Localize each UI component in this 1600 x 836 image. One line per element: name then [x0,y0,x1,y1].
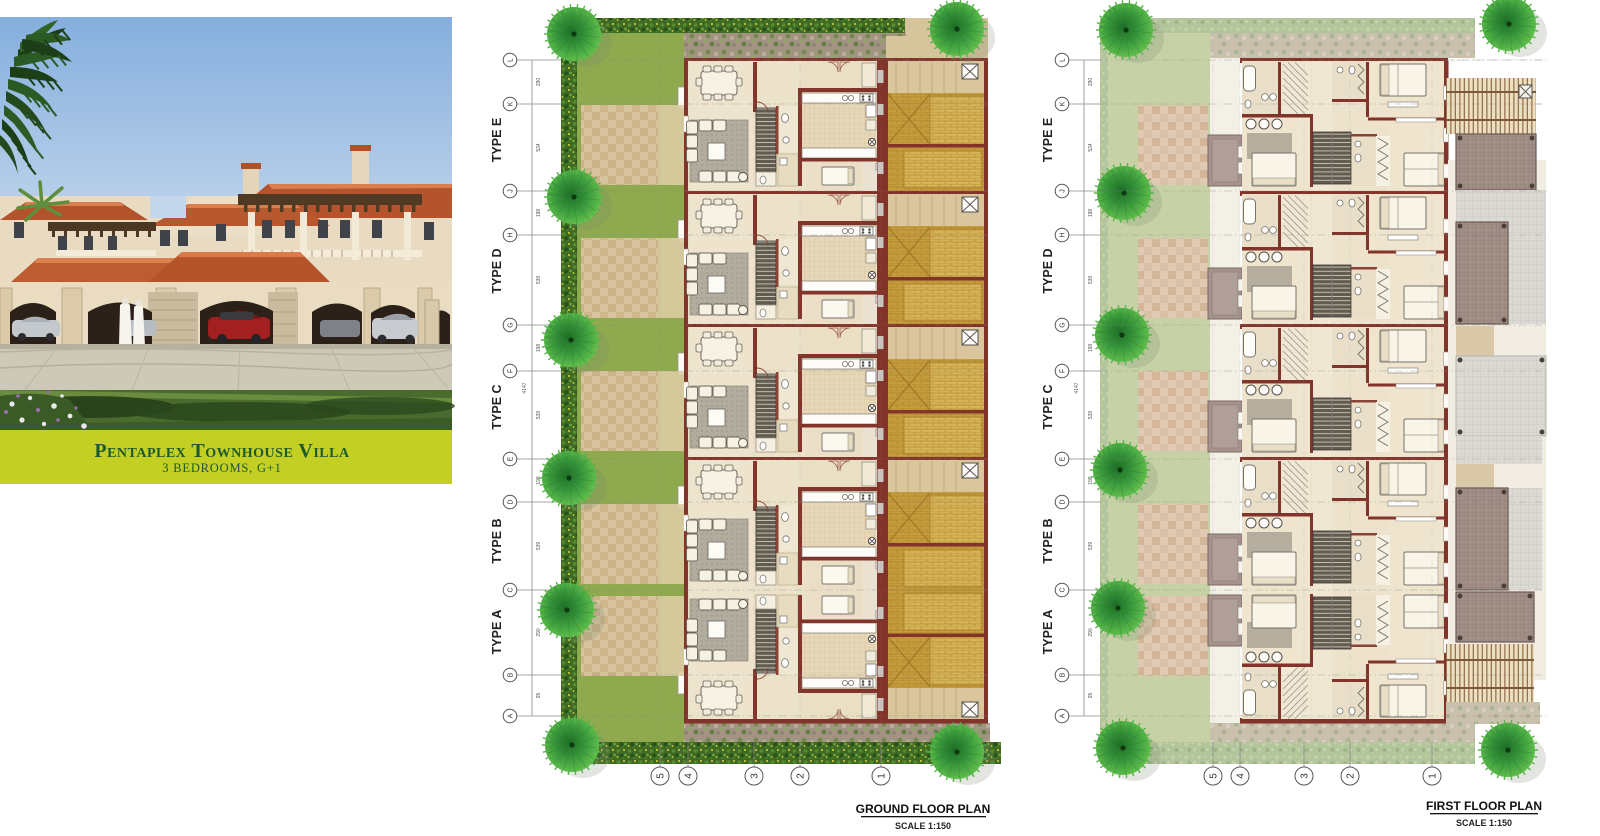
svg-text:539: 539 [1088,542,1094,551]
svg-text:290: 290 [1088,628,1094,637]
svg-text:TYPE B: TYPE B [1041,518,1055,563]
svg-text:5: 5 [1209,773,1220,779]
svg-text:TYPE A: TYPE A [490,610,504,655]
svg-text:G: G [508,322,515,327]
svg-text:198: 198 [1088,209,1094,218]
svg-text:K: K [508,101,515,106]
svg-text:2: 2 [1346,773,1357,779]
svg-text:5: 5 [656,773,667,779]
svg-text:539: 539 [536,276,542,285]
svg-text:198: 198 [536,344,542,353]
svg-text:198: 198 [536,209,542,218]
svg-text:4: 4 [684,773,695,779]
svg-text:J: J [508,189,515,193]
svg-text:539: 539 [536,542,542,551]
svg-text:F: F [1060,369,1067,373]
svg-text:FIRST FLOOR PLAN: FIRST FLOOR PLAN [1426,799,1542,813]
svg-text:GROUND FLOOR PLAN: GROUND FLOOR PLAN [856,802,991,816]
svg-text:C: C [508,587,515,592]
svg-text:J: J [1060,189,1067,193]
svg-text:C: C [1060,587,1067,592]
svg-text:TYPE D: TYPE D [1041,248,1055,293]
svg-text:1: 1 [877,773,888,779]
svg-text:TYPE D: TYPE D [490,248,504,293]
svg-text:2: 2 [796,773,807,779]
svg-text:B: B [508,672,515,677]
svg-text:E: E [1060,456,1067,461]
svg-text:4147: 4147 [522,382,528,393]
svg-text:290: 290 [536,628,542,637]
svg-text:3: 3 [1300,773,1311,779]
svg-text:E: E [508,456,515,461]
svg-text:539: 539 [1088,276,1094,285]
svg-text:3: 3 [750,773,761,779]
svg-text:TYPE C: TYPE C [490,384,504,429]
svg-text:290: 290 [1088,78,1094,87]
svg-text:H: H [1060,232,1067,237]
svg-text:H: H [508,232,515,237]
svg-text:F: F [508,369,515,373]
svg-text:A: A [1060,713,1067,718]
svg-text:D: D [508,499,515,504]
svg-text:539: 539 [1088,411,1094,420]
svg-text:1: 1 [1428,773,1439,779]
svg-text:G: G [1060,322,1067,327]
svg-text:K: K [1060,101,1067,106]
svg-text:TYPE C: TYPE C [1041,384,1055,429]
svg-text:TYPE A: TYPE A [1041,610,1055,655]
svg-text:B: B [1060,672,1067,677]
svg-text:A: A [508,713,515,718]
svg-text:534: 534 [536,143,542,152]
svg-text:L: L [1060,58,1067,62]
svg-text:TYPE B: TYPE B [490,518,504,563]
svg-text:SCALE 1:150: SCALE 1:150 [895,821,951,831]
svg-text:TYPE E: TYPE E [490,118,504,162]
svg-text:198: 198 [1088,344,1094,353]
svg-text:D: D [1060,499,1067,504]
svg-text:4147: 4147 [1074,382,1080,393]
svg-text:95: 95 [1088,693,1094,699]
svg-text:SCALE 1:150: SCALE 1:150 [1456,818,1512,828]
svg-text:3 BEDROOMS, G+1: 3 BEDROOMS, G+1 [162,461,281,475]
svg-text:534: 534 [1088,143,1094,152]
svg-text:L: L [508,58,515,62]
svg-text:TYPE E: TYPE E [1041,118,1055,162]
svg-text:95: 95 [536,693,542,699]
svg-text:290: 290 [536,78,542,87]
svg-text:539: 539 [536,411,542,420]
svg-text:Pentaplex Townhouse Villa: Pentaplex Townhouse Villa [94,440,350,462]
svg-text:4: 4 [1236,773,1247,779]
